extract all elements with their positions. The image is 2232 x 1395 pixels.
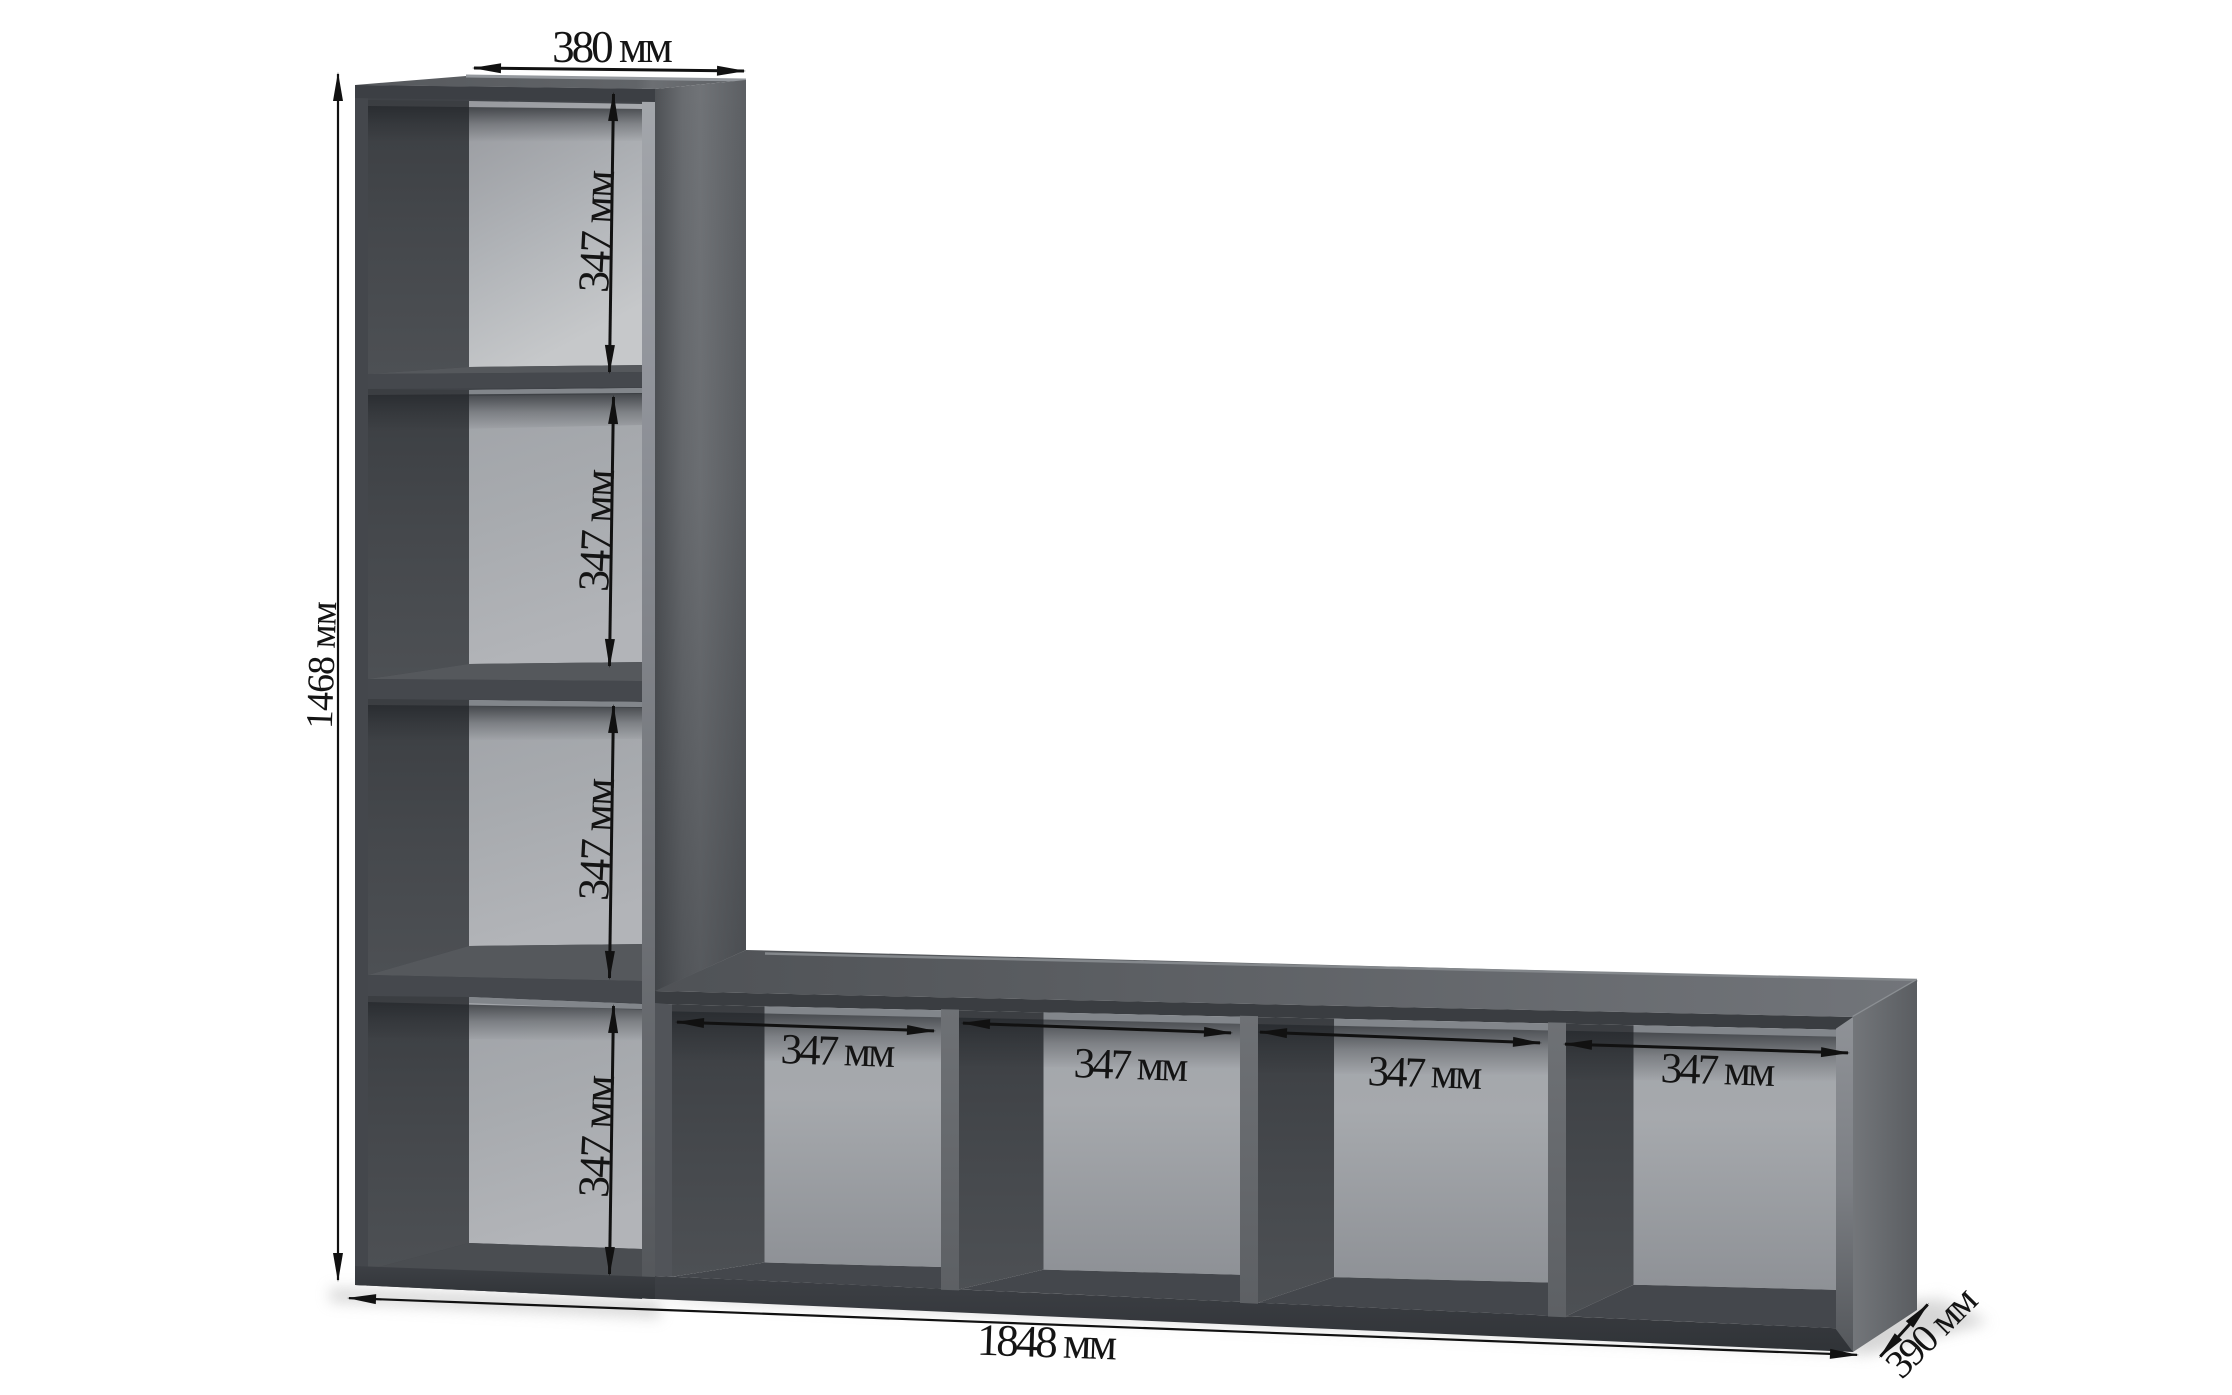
svg-text:347 мм: 347 мм [569, 778, 624, 902]
svg-text:347 мм: 347 мм [780, 1026, 896, 1077]
svg-text:347 мм: 347 мм [569, 469, 624, 593]
svg-text:380 мм: 380 мм [552, 22, 672, 72]
svg-text:347 мм: 347 мм [1367, 1048, 1483, 1099]
svg-text:347 мм: 347 мм [569, 1075, 624, 1199]
svg-text:1468 мм: 1468 мм [299, 601, 345, 730]
svg-text:347 мм: 347 мм [1073, 1040, 1189, 1091]
svg-text:347 мм: 347 мм [569, 170, 624, 294]
svg-text:1848 мм: 1848 мм [976, 1315, 1117, 1370]
svg-text:347 мм: 347 мм [1660, 1045, 1776, 1096]
